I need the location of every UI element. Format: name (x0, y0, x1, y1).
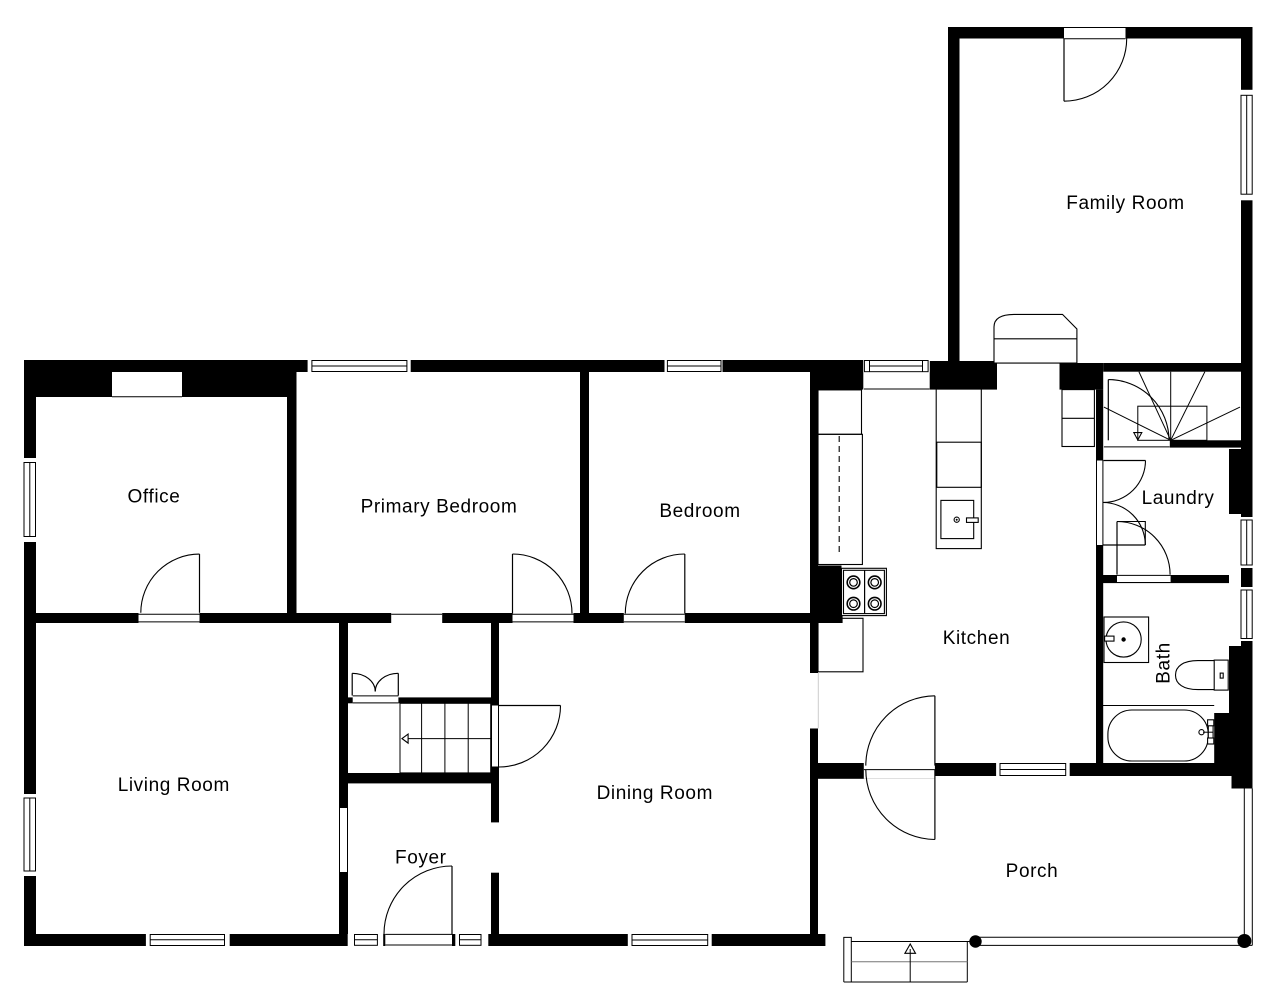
svg-text:Kitchen: Kitchen (943, 628, 1011, 649)
svg-text:Bath: Bath (1154, 642, 1175, 684)
svg-text:Office: Office (128, 487, 181, 508)
svg-text:Porch: Porch (1006, 861, 1059, 882)
svg-text:Primary Bedroom: Primary Bedroom (361, 497, 518, 518)
svg-text:Dining Room: Dining Room (597, 783, 713, 804)
svg-text:Living Room: Living Room (118, 775, 230, 796)
svg-text:Foyer: Foyer (395, 848, 447, 869)
svg-text:Laundry: Laundry (1142, 488, 1215, 509)
svg-text:Bedroom: Bedroom (659, 501, 740, 522)
svg-text:Family Room: Family Room (1066, 193, 1185, 214)
